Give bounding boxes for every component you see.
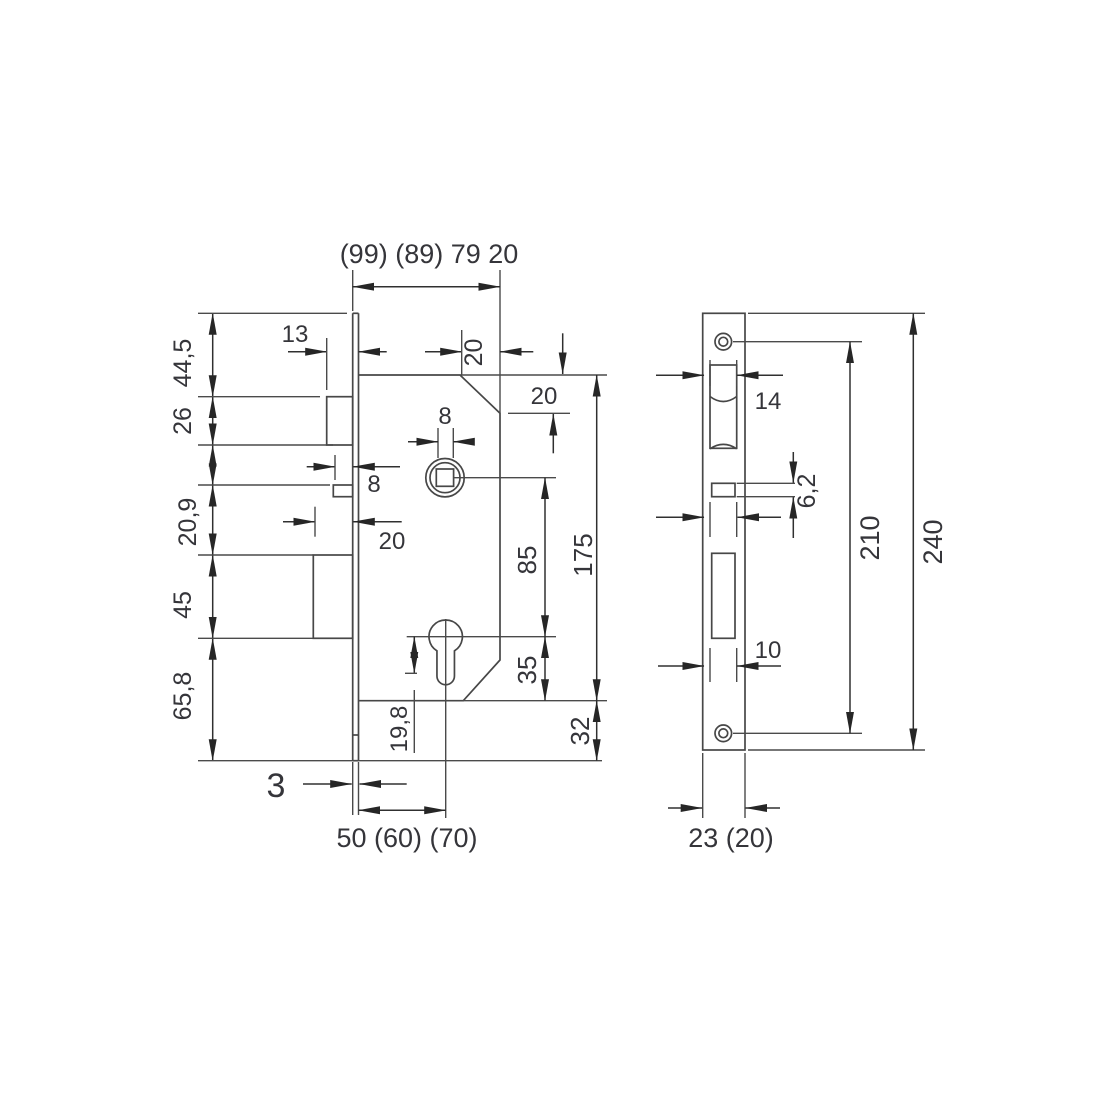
latch-face-top-curve [710, 397, 737, 402]
label-case-height: 175 [568, 533, 598, 576]
label-plate-length: 240 [918, 519, 948, 564]
label-deadbolt-throw: 20 [379, 528, 406, 555]
drawing-canvas: (99) (89) 79 20 20 13 20 8 8 20 175 85 3… [0, 0, 1100, 1100]
front-view-dimensions [656, 313, 925, 818]
label-edge-to-case: 20 [460, 339, 488, 367]
latch-bolt [327, 397, 353, 445]
label-deadbolt-slot-width: 10 [755, 637, 782, 664]
screw-hole-top-outer [715, 333, 732, 350]
front-view [703, 313, 745, 750]
label-plate-width: 23 (20) [688, 823, 774, 853]
label-top-edge-to-chamfer: 20 [531, 383, 558, 410]
label-height-2: 26 [169, 407, 197, 435]
label-follower-slot-height: 6,2 [793, 474, 821, 509]
deadbolt [313, 555, 352, 638]
follower-nub [333, 485, 352, 497]
label-backset: 50 (60) (70) [336, 823, 477, 853]
label-height-1: 44,5 [169, 339, 197, 388]
label-height-4: 45 [169, 591, 197, 619]
label-follower-square: 8 [438, 403, 451, 430]
screw-hole-bottom-inner [719, 729, 728, 738]
mortise-lock-technical-drawing: (99) (89) 79 20 20 13 20 8 8 20 175 85 3… [0, 0, 1100, 1100]
label-cylinder-offset: 19,8 [386, 706, 413, 753]
label-plate-thickness: 3 [267, 767, 286, 805]
deadbolt-cutout [712, 553, 735, 638]
label-cylinder-to-case-bottom: 35 [512, 656, 542, 685]
label-latch-throw: 13 [282, 321, 309, 348]
label-height-3: 20,9 [174, 498, 202, 547]
label-bottom-margin: 32 [565, 717, 595, 746]
follower-slot [712, 483, 735, 496]
label-overall-width: (99) (89) 79 20 [340, 239, 519, 269]
label-screw-centers: 210 [855, 515, 885, 560]
spindle-square-hole [436, 469, 453, 486]
label-latch-cutout-width: 14 [755, 388, 782, 415]
label-follower-nub: 8 [367, 471, 380, 498]
latch-cutout [710, 365, 737, 448]
label-height-5: 65,8 [169, 672, 197, 721]
faceplate-front [703, 313, 745, 750]
label-follower-to-cylinder: 85 [512, 546, 542, 575]
screw-hole-bottom-outer [715, 725, 732, 742]
screw-hole-top-inner [719, 337, 728, 346]
